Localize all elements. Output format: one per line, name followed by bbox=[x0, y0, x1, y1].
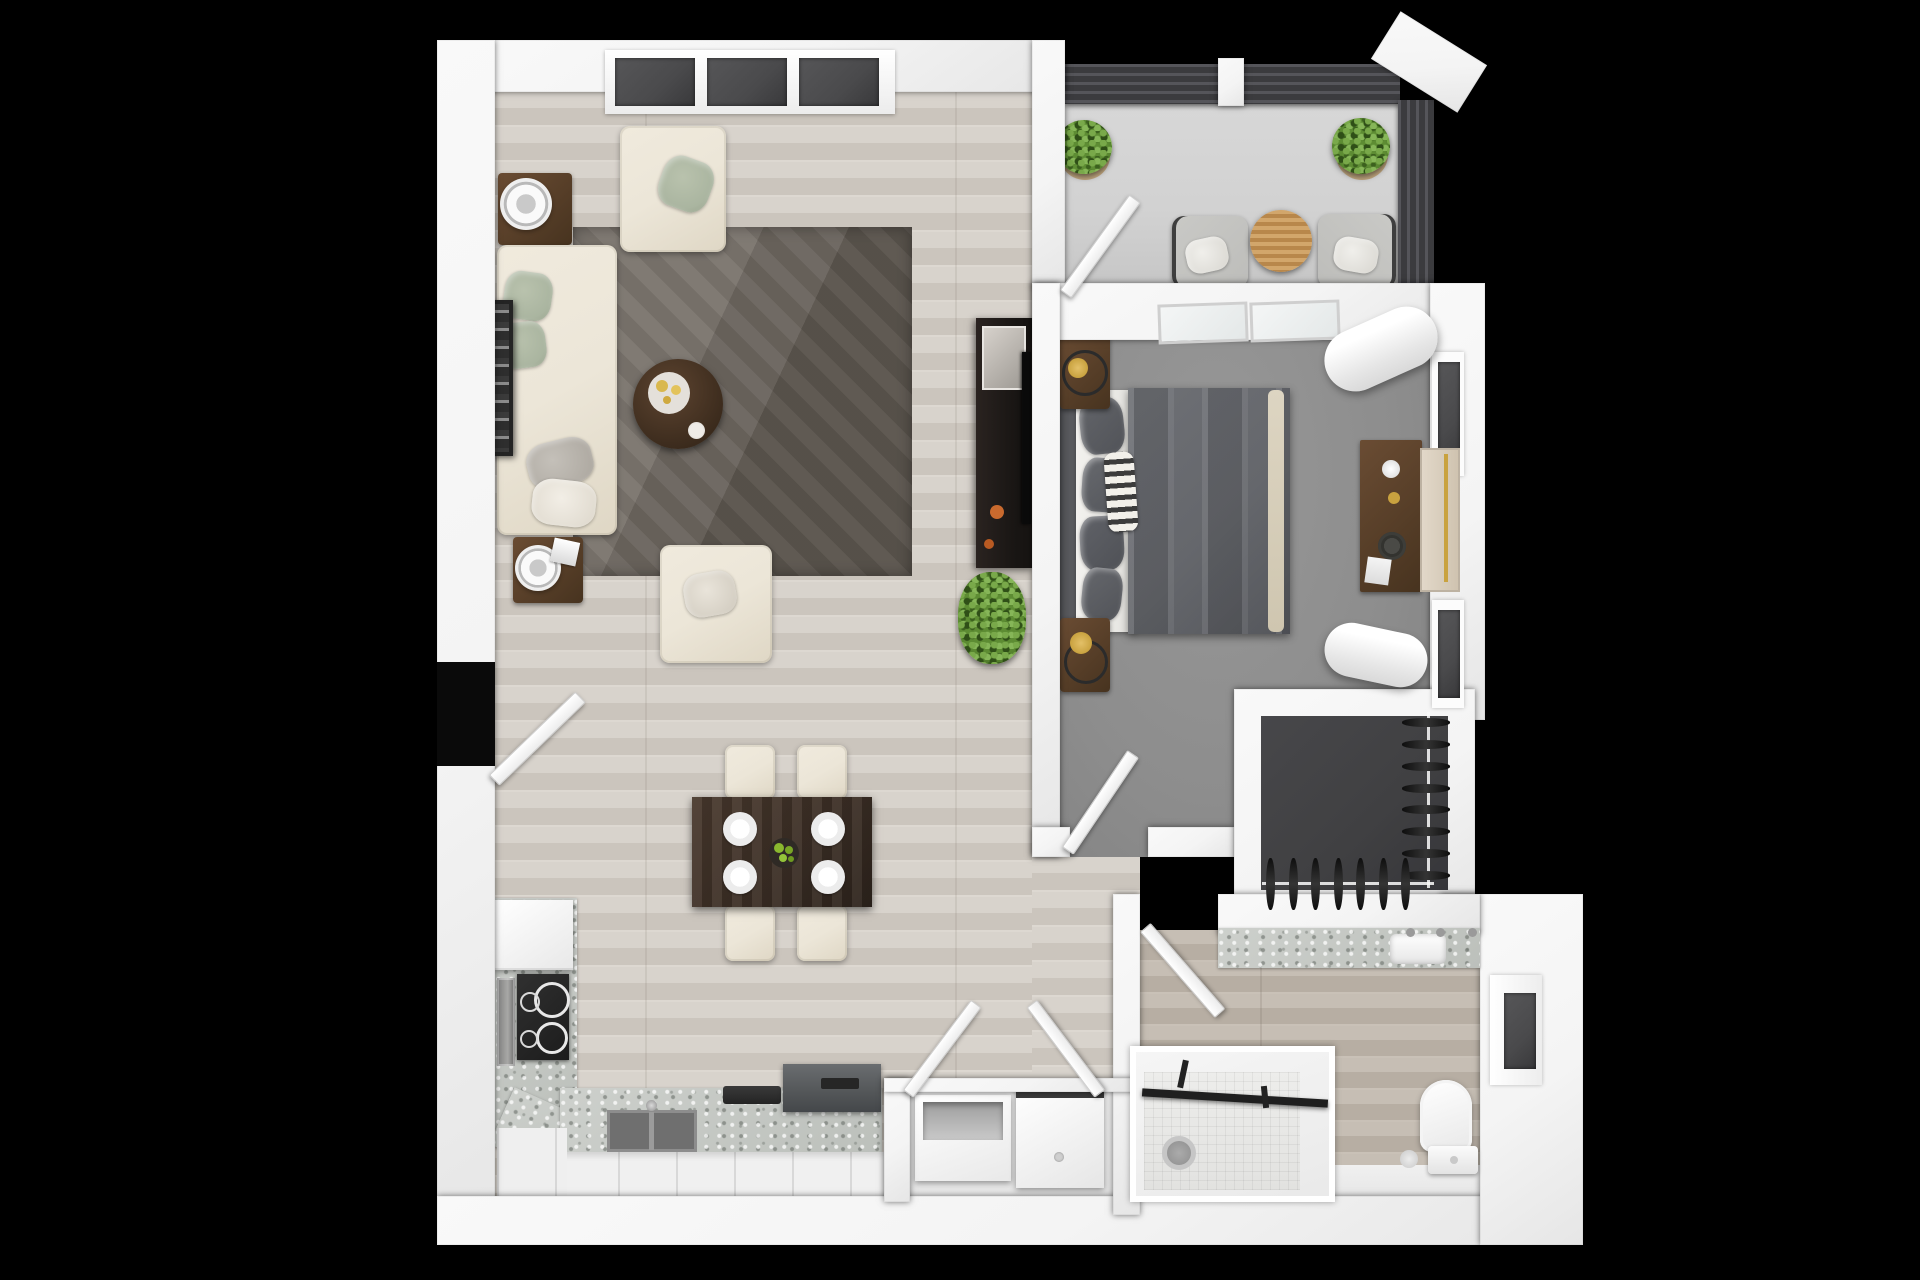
dresser-gold-item bbox=[1388, 492, 1400, 504]
bathroom-sink bbox=[1390, 934, 1446, 964]
hanging-garment bbox=[1311, 858, 1320, 910]
bathroom-faucet bbox=[1406, 928, 1415, 937]
leaning-art-board bbox=[1420, 448, 1460, 592]
hanging-garment bbox=[1289, 858, 1298, 910]
kitchen-cabinet-faces-left bbox=[497, 1128, 567, 1198]
magazine bbox=[550, 538, 580, 567]
oven-door bbox=[497, 978, 515, 1066]
hanging-garment bbox=[1402, 849, 1450, 858]
wall-bottom bbox=[437, 1196, 1583, 1245]
bathroom-window bbox=[1504, 993, 1536, 1069]
bedroom-top-window-2 bbox=[1249, 299, 1340, 342]
balcony-planter-right bbox=[1332, 118, 1390, 174]
toilet-flush-button bbox=[1450, 1156, 1458, 1164]
bed-headboard bbox=[1060, 390, 1076, 630]
place-setting-4 bbox=[811, 860, 845, 894]
wall-living-balcony bbox=[1032, 40, 1065, 288]
living-window-pane-3 bbox=[799, 58, 879, 106]
place-setting-2 bbox=[811, 812, 845, 846]
balcony-railing-right bbox=[1398, 100, 1434, 288]
wall-laundry-left bbox=[884, 1078, 910, 1202]
art-board-gold-stripe bbox=[1444, 454, 1448, 582]
living-window-pane-2 bbox=[707, 58, 787, 106]
console-photo-frame bbox=[982, 326, 1026, 390]
refrigerator bbox=[495, 900, 573, 970]
fruit-bowl bbox=[769, 838, 799, 868]
green-apples bbox=[774, 843, 784, 853]
nightstand-top-lamp bbox=[1068, 358, 1088, 378]
area-rug bbox=[573, 227, 912, 576]
sink-basin-divider bbox=[649, 1112, 654, 1150]
water-heater bbox=[1016, 1086, 1104, 1188]
storage-bin-interior bbox=[923, 1102, 1003, 1140]
entry-doorway-opening bbox=[437, 662, 495, 766]
hanging-garment bbox=[1402, 718, 1450, 727]
hanging-garment bbox=[1402, 805, 1450, 814]
bed-duvet-cream-edge bbox=[1268, 390, 1284, 632]
dining-chair-1 bbox=[725, 745, 775, 799]
console-decor-orange bbox=[990, 505, 1004, 519]
dining-chair-4 bbox=[797, 905, 847, 961]
cup bbox=[688, 422, 705, 439]
hanging-garment bbox=[1402, 740, 1450, 749]
potted-plant-living bbox=[958, 572, 1026, 664]
bed-duvet bbox=[1128, 388, 1290, 634]
lemons bbox=[656, 380, 668, 392]
nightstand-bottom-lamp bbox=[1070, 632, 1092, 654]
dresser-hat bbox=[1378, 532, 1406, 560]
closet-rack-side bbox=[1402, 718, 1450, 880]
burner-4 bbox=[520, 1030, 538, 1048]
hanging-garment bbox=[1356, 858, 1365, 910]
dining-chair-3 bbox=[725, 905, 775, 961]
dining-chair-2 bbox=[797, 745, 847, 799]
dresser-vase bbox=[1382, 460, 1400, 478]
dishwasher-handle bbox=[821, 1078, 859, 1089]
hanging-garment bbox=[1379, 858, 1388, 910]
television bbox=[1022, 352, 1031, 524]
kitchen-cabinet-faces bbox=[560, 1152, 884, 1200]
wall-bedroom-left bbox=[1032, 283, 1060, 857]
hanging-garment bbox=[1401, 858, 1410, 910]
tub-drain bbox=[1162, 1136, 1196, 1170]
hanging-garment bbox=[1266, 858, 1275, 910]
toilet-bowl bbox=[1420, 1080, 1472, 1152]
table-lamp-top bbox=[500, 178, 552, 230]
place-setting-1 bbox=[723, 812, 757, 846]
hanging-garment bbox=[1334, 858, 1343, 910]
hanging-garment bbox=[1402, 784, 1450, 793]
closet-rack-bottom bbox=[1266, 858, 1410, 910]
hanging-garment bbox=[1402, 827, 1450, 836]
balcony-table bbox=[1250, 210, 1312, 272]
hanging-garment bbox=[1402, 762, 1450, 771]
dresser-papers bbox=[1364, 556, 1391, 585]
serving-tray bbox=[648, 372, 690, 414]
balcony-railing-post bbox=[1218, 58, 1244, 106]
sofa-pillow-white bbox=[530, 477, 598, 529]
water-heater-knob bbox=[1054, 1152, 1064, 1162]
wall-left bbox=[437, 40, 495, 1245]
place-setting-3 bbox=[723, 860, 757, 894]
bed-accent-pillow-striped bbox=[1103, 451, 1139, 533]
floor-plan bbox=[0, 0, 1920, 1280]
wall-bedroom-bottom-b bbox=[1148, 827, 1234, 857]
bedroom-top-window-1 bbox=[1157, 301, 1248, 344]
kitchen-faucet bbox=[646, 1100, 657, 1111]
living-window-pane-1 bbox=[615, 58, 695, 106]
bathroom-bin bbox=[1400, 1150, 1418, 1168]
burner-3 bbox=[520, 992, 540, 1012]
burner-2 bbox=[536, 1022, 568, 1054]
counter-tray bbox=[723, 1086, 781, 1104]
bedroom-side-window-2 bbox=[1438, 610, 1460, 698]
